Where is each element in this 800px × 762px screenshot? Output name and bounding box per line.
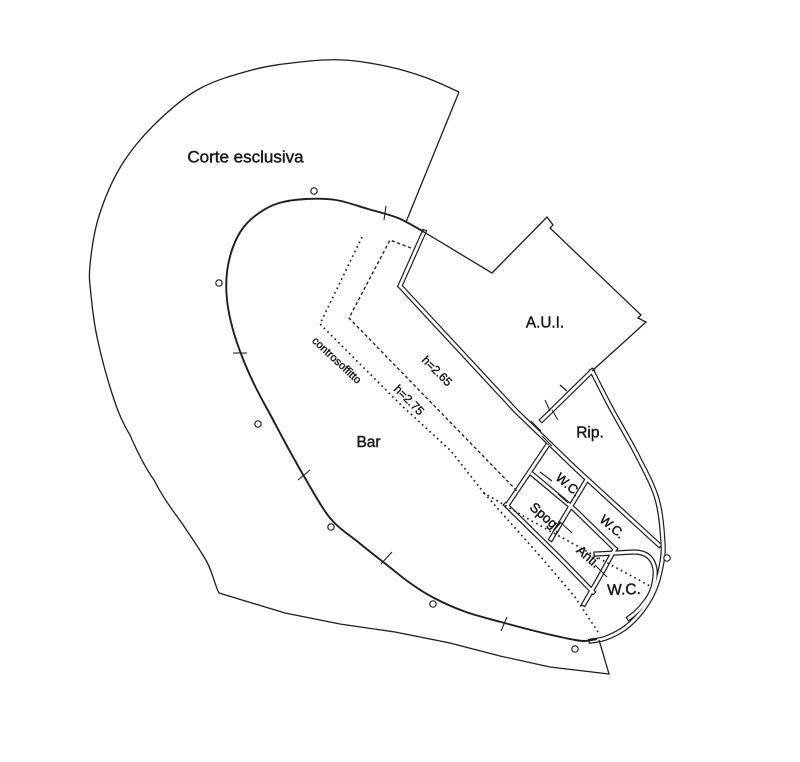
svg-text:Corte esclusiva: Corte esclusiva — [187, 148, 304, 167]
svg-text:W.C.: W.C. — [607, 581, 641, 599]
svg-text:Bar: Bar — [356, 434, 380, 451]
svg-text:A.U.I.: A.U.I. — [526, 315, 564, 332]
svg-text:Rip.: Rip. — [576, 425, 604, 442]
